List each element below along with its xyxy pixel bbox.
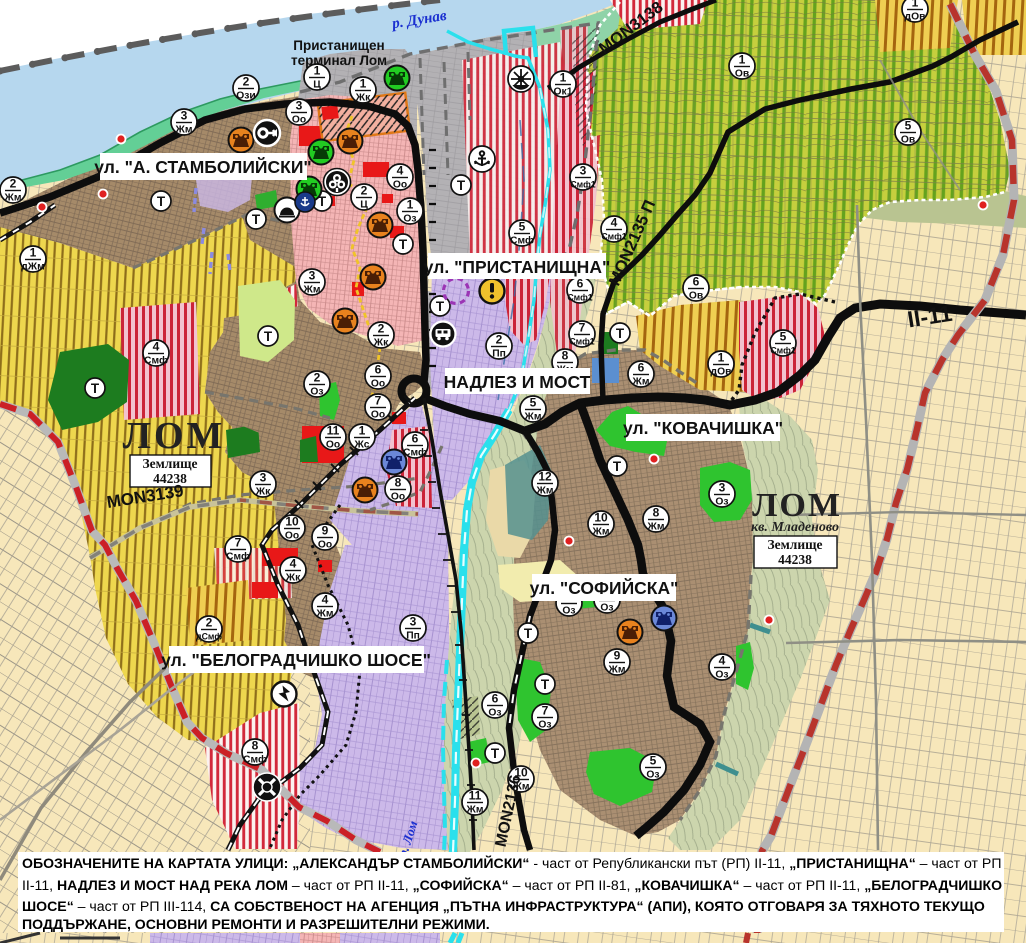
svg-text:ЛОМ: ЛОМ: [752, 487, 842, 524]
svg-text:Землище: Землище: [767, 537, 822, 552]
svg-text:3: 3: [719, 481, 726, 495]
svg-text:Смф1: Смф1: [770, 346, 795, 356]
svg-text:Оз: Оз: [538, 720, 551, 731]
svg-text:Оз: Оз: [646, 770, 659, 781]
svg-text:8: 8: [653, 506, 660, 520]
svg-text:3: 3: [580, 164, 587, 178]
svg-text:2: 2: [496, 333, 503, 347]
svg-text:Т: Т: [264, 329, 273, 344]
svg-text:ЛОМ: ЛОМ: [123, 415, 226, 457]
svg-text:Жм: Жм: [303, 285, 321, 296]
svg-text:Ц: Ц: [313, 80, 321, 91]
svg-text:9: 9: [614, 649, 621, 663]
svg-text:Жс: Жс: [353, 440, 369, 451]
svg-text:Смф: Смф: [510, 235, 534, 247]
svg-text:Жм: Жм: [632, 377, 650, 388]
svg-text:ул. "СОФИЙСКА": ул. "СОФИЙСКА": [530, 577, 679, 598]
svg-text:Ов: Ов: [735, 69, 749, 80]
svg-text:7: 7: [235, 536, 242, 550]
svg-text:Жк: Жк: [373, 338, 389, 349]
svg-text:Смф1: Смф1: [570, 180, 595, 190]
svg-text:6: 6: [693, 275, 700, 289]
svg-text:Оз: Оз: [488, 708, 501, 719]
svg-text:Оз: Оз: [310, 387, 323, 398]
svg-text:Оз: Оз: [403, 214, 416, 225]
svg-text:Жм: Жм: [466, 805, 484, 816]
svg-text:4: 4: [719, 654, 726, 668]
svg-text:Ов: Ов: [901, 135, 915, 146]
svg-text:Оо: Оо: [292, 115, 306, 126]
svg-text:1: 1: [718, 351, 725, 365]
svg-text:1: 1: [739, 53, 746, 67]
svg-text:Ози: Ози: [236, 91, 255, 102]
svg-text:Жк: Жк: [285, 573, 301, 584]
svg-text:Смф: Смф: [243, 754, 267, 766]
svg-text:3: 3: [309, 269, 316, 283]
svg-text:Т: Т: [157, 194, 166, 209]
svg-text:дЖм: дЖм: [21, 262, 44, 273]
svg-text:ул. "ПРИСТАНИЩНА": ул. "ПРИСТАНИЩНА": [424, 257, 611, 277]
svg-text:Жм: Жм: [4, 193, 22, 204]
svg-text:6: 6: [638, 361, 645, 375]
svg-text:дОв: дОв: [905, 12, 926, 23]
svg-text:ул. "БЕЛОГРАДЧИШКО ШОСЕ": ул. "БЕЛОГРАДЧИШКО ШОСЕ": [161, 650, 431, 670]
svg-text:4: 4: [611, 216, 618, 230]
svg-text:1: 1: [912, 0, 919, 10]
svg-text:Жк: Жк: [255, 487, 271, 498]
svg-text:кв. Младеново: кв. Младеново: [751, 520, 839, 535]
svg-text:7: 7: [579, 321, 586, 335]
svg-text:4: 4: [153, 340, 160, 354]
svg-text:4: 4: [397, 164, 404, 178]
svg-text:1: 1: [30, 246, 37, 260]
svg-text:Т: Т: [616, 326, 625, 341]
svg-text:Жм: Жм: [536, 486, 554, 497]
svg-text:Оо: Оо: [285, 531, 299, 542]
svg-text:3: 3: [181, 109, 188, 123]
svg-text:6: 6: [492, 692, 499, 706]
svg-text:9: 9: [322, 524, 329, 538]
svg-text:7: 7: [542, 704, 549, 718]
svg-text:Оо: Оо: [391, 492, 405, 503]
svg-text:2: 2: [243, 75, 250, 89]
svg-text:2: 2: [314, 371, 321, 385]
svg-text:II-11, НАДЛЕЗ И МОСТ НАД РЕКА: II-11, НАДЛЕЗ И МОСТ НАД РЕКА ЛОМ – част…: [22, 876, 1002, 893]
svg-text:Т: Т: [524, 626, 533, 641]
svg-text:6: 6: [375, 363, 382, 377]
svg-text:4: 4: [322, 593, 329, 607]
svg-text:10: 10: [594, 511, 608, 525]
svg-text:НАДЛЕЗ И МОСТ: НАДЛЕЗ И МОСТ: [444, 372, 591, 392]
svg-text:Т: Т: [436, 299, 445, 314]
svg-text:Смф: Смф: [144, 355, 168, 367]
svg-text:5: 5: [905, 119, 912, 133]
svg-text:Пп: Пп: [406, 631, 420, 642]
svg-text:Землище: Землище: [142, 456, 197, 471]
svg-text:Пп: Пп: [492, 349, 506, 360]
svg-text:3: 3: [410, 615, 417, 629]
svg-text:11: 11: [469, 789, 482, 803]
svg-text:1: 1: [560, 71, 567, 85]
svg-text:ул. "А. СТАМБОЛИЙСКИ": ул. "А. СТАМБОЛИЙСКИ": [94, 156, 311, 177]
svg-text:2: 2: [206, 616, 213, 630]
svg-text:10: 10: [285, 515, 299, 529]
svg-text:1: 1: [407, 198, 414, 212]
svg-text:Т: Т: [613, 459, 622, 474]
svg-text:5: 5: [530, 396, 537, 410]
svg-text:8: 8: [252, 739, 259, 753]
svg-text:Т: Т: [457, 178, 466, 193]
svg-text:3: 3: [296, 99, 303, 113]
svg-text:Смф: Смф: [403, 447, 427, 459]
svg-text:5: 5: [780, 330, 787, 344]
svg-text:Ов: Ов: [689, 291, 703, 302]
svg-text:Жм: Жм: [608, 665, 626, 676]
svg-text:Оо: Оо: [393, 180, 407, 191]
svg-text:11: 11: [327, 424, 340, 438]
svg-text:терминал Лом: терминал Лом: [291, 53, 387, 68]
svg-text:12: 12: [538, 470, 552, 484]
svg-text:2: 2: [361, 184, 368, 198]
svg-text:2: 2: [378, 322, 385, 336]
svg-text:Жм: Жм: [175, 125, 193, 136]
svg-text:Т: Т: [541, 677, 550, 692]
svg-text:Жк: Жк: [355, 93, 371, 104]
svg-text:Ц: Ц: [360, 200, 368, 211]
svg-text:Жм: Жм: [316, 609, 334, 620]
svg-text:Ок1: Ок1: [554, 87, 573, 98]
svg-text:5: 5: [519, 220, 526, 234]
svg-text:7: 7: [375, 394, 382, 408]
svg-text:2: 2: [10, 177, 17, 191]
svg-text:Пристанищен: Пристанищен: [293, 38, 384, 53]
svg-text:Оз: Оз: [715, 670, 728, 681]
svg-text:Смф1: Смф1: [569, 337, 594, 347]
svg-text:Оз: Оз: [600, 603, 613, 614]
svg-text:Т: Т: [399, 237, 408, 252]
svg-text:Т: Т: [491, 746, 500, 761]
svg-text:Смф1: Смф1: [567, 293, 592, 303]
svg-text:1: 1: [360, 77, 367, 91]
svg-text:5: 5: [650, 754, 657, 768]
svg-text:Т: Т: [252, 212, 261, 227]
svg-text:ШОСЕ“ – част от РП III-114, СА: ШОСЕ“ – част от РП III-114, СА СОБСТВЕНО…: [22, 898, 985, 914]
svg-text:3: 3: [260, 471, 267, 485]
svg-text:8: 8: [395, 476, 402, 490]
svg-text:8: 8: [562, 349, 569, 363]
svg-text:дОв: дОв: [711, 367, 732, 378]
svg-text:Жм: Жм: [647, 522, 665, 533]
svg-text:Оо: Оо: [318, 540, 332, 551]
svg-text:Оо: Оо: [371, 379, 385, 390]
svg-text:ул. "КОВАЧИШКА": ул. "КОВАЧИШКА": [623, 418, 783, 438]
svg-text:дСмф: дСмф: [196, 632, 222, 642]
svg-text:Т: Т: [91, 381, 100, 396]
svg-text:1: 1: [359, 424, 366, 438]
svg-text:ОБОЗНАЧЕНИТЕ НА КАРТАТА УЛИЦИ:: ОБОЗНАЧЕНИТЕ НА КАРТАТА УЛИЦИ: „АЛЕКСАНД…: [22, 854, 1001, 871]
svg-text:ПОДДЪРЖАНЕ, ОСНОВНИ РЕМОНТИ И: ПОДДЪРЖАНЕ, ОСНОВНИ РЕМОНТИ И РАЗРЕШИТЕЛ…: [22, 916, 490, 932]
svg-text:Смф: Смф: [226, 551, 250, 563]
svg-text:6: 6: [412, 432, 419, 446]
svg-text:Оз: Оз: [562, 606, 575, 617]
svg-text:Жм: Жм: [524, 412, 542, 423]
svg-text:Оз: Оз: [715, 497, 728, 508]
svg-text:Жм: Жм: [592, 527, 610, 538]
svg-text:Оо: Оо: [326, 440, 340, 451]
svg-text:44238: 44238: [778, 552, 812, 567]
svg-text:Оо: Оо: [371, 410, 385, 421]
svg-text:4: 4: [290, 557, 297, 571]
